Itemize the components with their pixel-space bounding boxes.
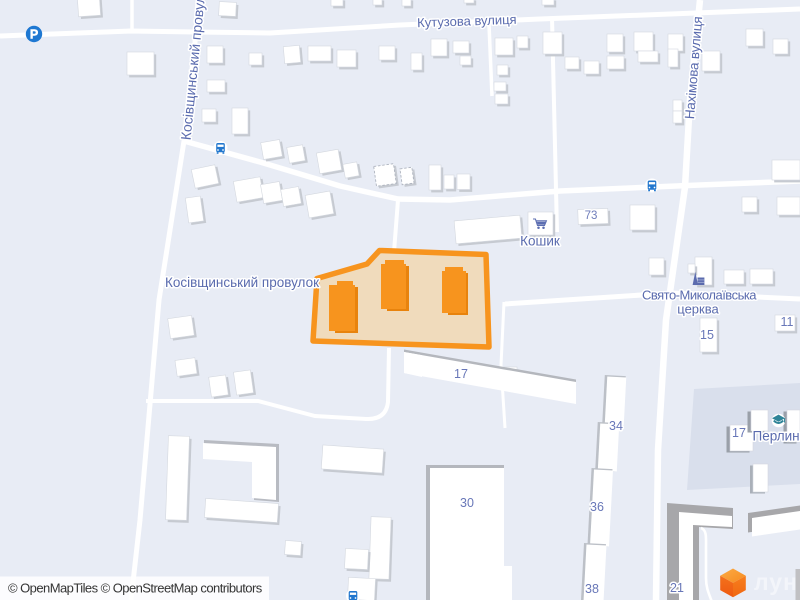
svg-text:15: 15 — [700, 328, 714, 342]
svg-text:Кошик: Кошик — [520, 234, 560, 249]
svg-text:30: 30 — [460, 496, 474, 510]
svg-text:38: 38 — [585, 582, 599, 596]
svg-text:73: 73 — [585, 210, 598, 222]
svg-text:© OpenMapTiles © OpenStreetMap: © OpenMapTiles © OpenStreetMap contribut… — [8, 581, 263, 596]
svg-text:34: 34 — [609, 419, 623, 433]
svg-text:P: P — [30, 27, 38, 41]
svg-text:36: 36 — [590, 500, 604, 514]
svg-text:Перлинка: Перлинка — [753, 429, 800, 444]
svg-text:Свято-Миколаївська: Свято-Миколаївська — [642, 288, 757, 303]
svg-text:21: 21 — [670, 581, 684, 595]
svg-text:Косівщинський провулок: Косівщинський провулок — [165, 275, 319, 290]
svg-text:11: 11 — [781, 315, 794, 329]
svg-text:17: 17 — [732, 426, 746, 440]
svg-text:церква: церква — [677, 302, 719, 317]
svg-text:лун: лун — [754, 569, 798, 595]
svg-text:17: 17 — [454, 367, 468, 381]
